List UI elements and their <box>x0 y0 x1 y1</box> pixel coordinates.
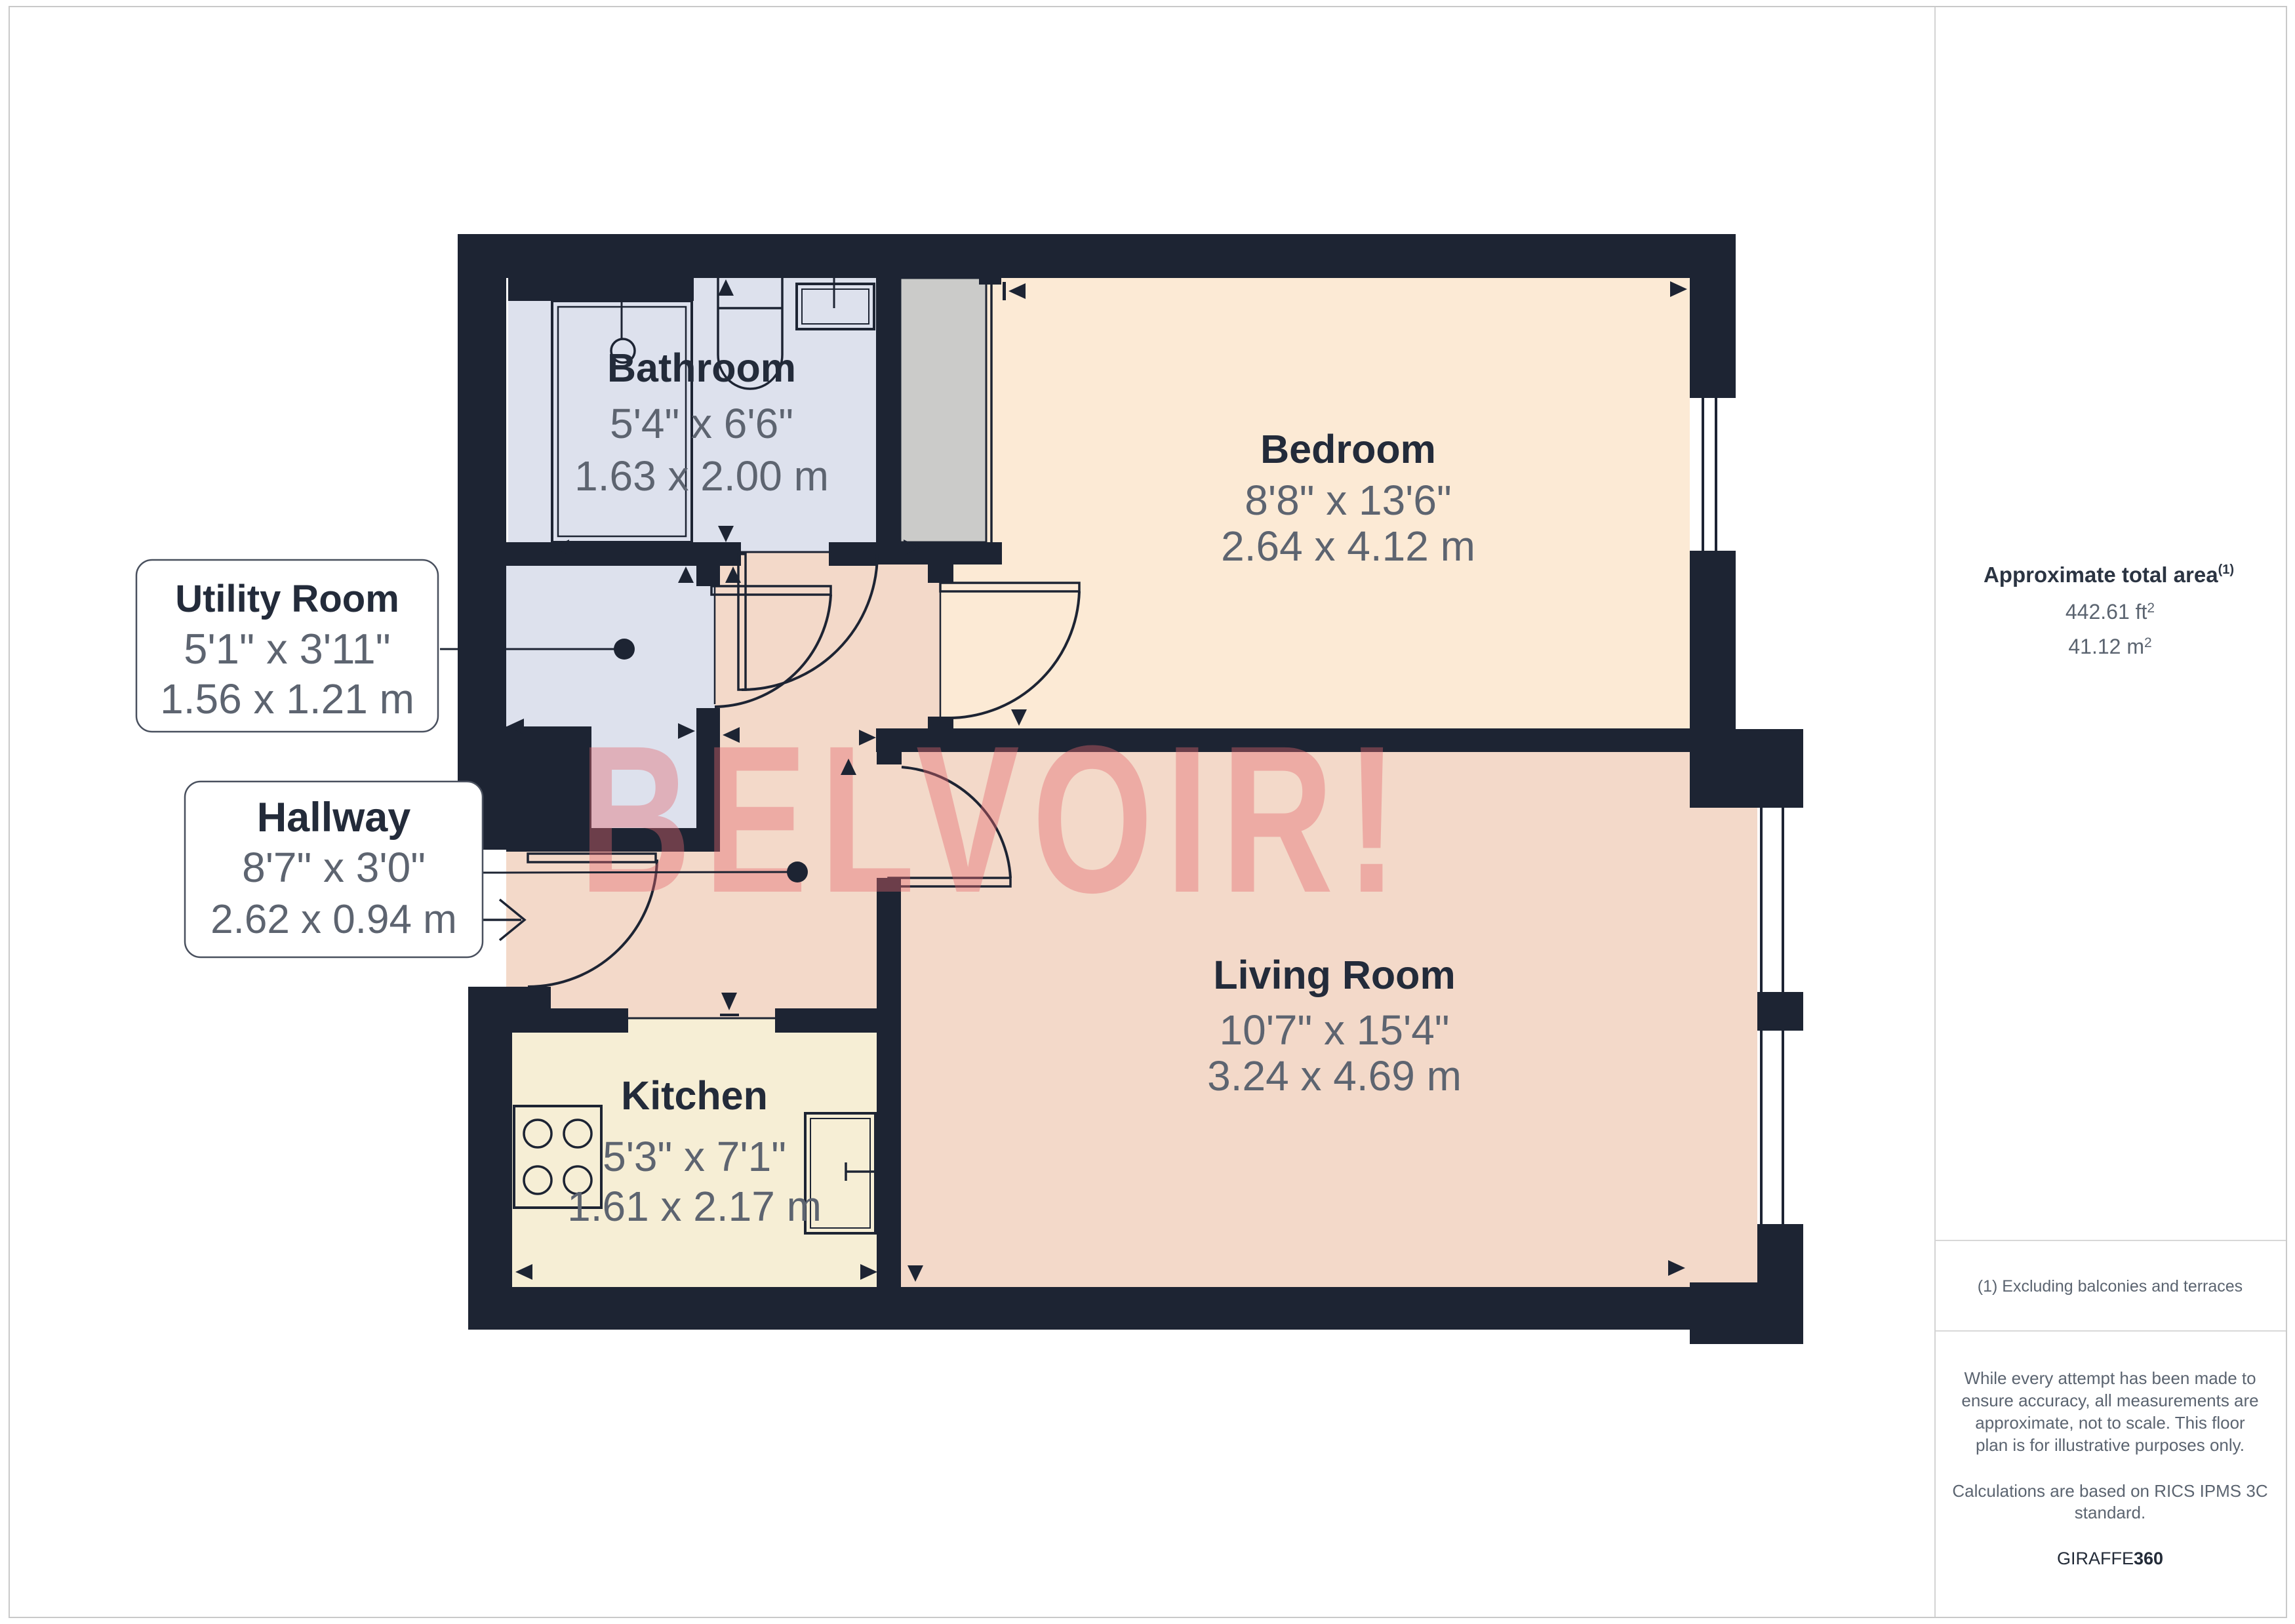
svg-text:1.56 x 1.21 m: 1.56 x 1.21 m <box>160 675 414 723</box>
svg-text:While every attempt has been m: While every attempt has been made to <box>1964 1368 2256 1388</box>
svg-text:approximate, not to scale. Thi: approximate, not to scale. This floor <box>1975 1413 2245 1433</box>
svg-text:5'3" x 7'1": 5'3" x 7'1" <box>603 1133 786 1180</box>
svg-text:plan is for illustrative purpo: plan is for illustrative purposes only. <box>1976 1435 2245 1455</box>
svg-text:Calculations are based on RICS: Calculations are based on RICS IPMS 3C <box>1952 1481 2267 1501</box>
svg-text:8'8" x 13'6": 8'8" x 13'6" <box>1245 477 1451 524</box>
svg-text:41.12 m2: 41.12 m2 <box>2068 635 2151 658</box>
svg-text:standard.: standard. <box>2075 1503 2145 1522</box>
svg-text:(1) Excluding balconies and te: (1) Excluding balconies and terraces <box>1978 1277 2243 1296</box>
svg-text:5'4" x 6'6": 5'4" x 6'6" <box>610 400 793 447</box>
svg-text:1.63 x 2.00 m: 1.63 x 2.00 m <box>574 452 829 500</box>
svg-text:Hallway: Hallway <box>257 795 411 841</box>
svg-text:GIRAFFE360: GIRAFFE360 <box>2057 1549 2163 1568</box>
svg-text:BELVOIR!: BELVOIR! <box>579 702 1410 936</box>
svg-text:2.62 x 0.94 m: 2.62 x 0.94 m <box>210 897 457 942</box>
svg-text:3.24 x 4.69 m: 3.24 x 4.69 m <box>1207 1052 1462 1099</box>
svg-text:ensure accuracy, all measureme: ensure accuracy, all measurements are <box>1961 1391 2258 1410</box>
svg-text:1.61 x 2.17 m: 1.61 x 2.17 m <box>567 1183 822 1230</box>
svg-text:10'7" x 15'4": 10'7" x 15'4" <box>1220 1006 1450 1054</box>
svg-text:Utility Room: Utility Room <box>175 578 399 620</box>
svg-text:Kitchen: Kitchen <box>621 1073 768 1118</box>
svg-text:442.61 ft2: 442.61 ft2 <box>2065 600 2155 624</box>
svg-text:Living Room: Living Room <box>1213 953 1455 997</box>
svg-text:Bedroom: Bedroom <box>1260 427 1436 471</box>
svg-text:2.64 x 4.12 m: 2.64 x 4.12 m <box>1221 523 1475 570</box>
svg-text:8'7" x 3'0": 8'7" x 3'0" <box>242 844 426 891</box>
svg-text:Bathroom: Bathroom <box>607 346 796 390</box>
svg-text:5'1" x 3'11": 5'1" x 3'11" <box>184 625 391 673</box>
svg-text:Approximate total area(1): Approximate total area(1) <box>1984 563 2234 587</box>
